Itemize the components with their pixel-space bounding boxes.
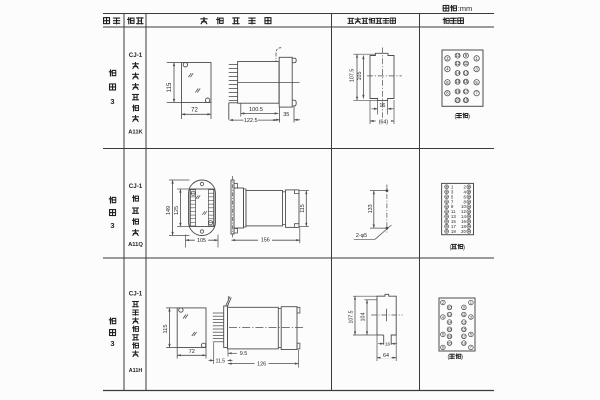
svg-text:CJ-1: CJ-1: [129, 291, 143, 298]
svg-text:): ): [463, 245, 465, 251]
svg-text:104: 104: [361, 313, 367, 322]
svg-text:126: 126: [257, 362, 266, 368]
svg-text:12: 12: [448, 313, 452, 317]
svg-text:19: 19: [464, 98, 469, 103]
svg-text:125: 125: [174, 206, 180, 215]
svg-text:115: 115: [300, 204, 306, 213]
svg-text:100.5: 100.5: [249, 107, 263, 113]
svg-text:13: 13: [464, 71, 469, 76]
svg-text:107.5: 107.5: [349, 69, 355, 83]
svg-text:72: 72: [189, 349, 195, 355]
svg-text:10: 10: [455, 53, 460, 58]
svg-text:105: 105: [357, 72, 363, 81]
svg-text:20: 20: [448, 341, 452, 345]
svg-text:13: 13: [462, 320, 466, 324]
svg-text:133: 133: [368, 204, 374, 213]
svg-text:17: 17: [464, 89, 469, 94]
svg-text:149: 149: [166, 206, 172, 215]
svg-text:18: 18: [455, 89, 460, 94]
svg-text:1: 1: [470, 301, 472, 305]
svg-text:(: (: [450, 245, 452, 251]
svg-text:A11H: A11H: [129, 368, 143, 374]
svg-text:6: 6: [446, 80, 449, 85]
svg-text:20: 20: [455, 98, 460, 103]
svg-text:CJ-1: CJ-1: [129, 52, 143, 59]
svg-text:CJ-1: CJ-1: [129, 183, 143, 190]
svg-text:11: 11: [462, 313, 466, 317]
svg-text:7: 7: [470, 346, 472, 350]
svg-text:A11Q: A11Q: [128, 242, 143, 248]
svg-text:(: (: [455, 114, 457, 120]
svg-text:4: 4: [442, 315, 444, 319]
svg-text:18: 18: [448, 335, 452, 339]
svg-text:(64): (64): [379, 119, 389, 125]
svg-text:3: 3: [110, 339, 114, 348]
svg-text:122.5: 122.5: [244, 118, 258, 124]
svg-text:105: 105: [197, 238, 206, 244]
svg-text:72: 72: [191, 108, 198, 114]
svg-text:14: 14: [448, 320, 452, 324]
svg-text:9: 9: [463, 306, 465, 310]
svg-text:9.5: 9.5: [240, 351, 248, 357]
svg-text:16: 16: [448, 328, 452, 332]
svg-text:7: 7: [475, 91, 478, 96]
svg-text:8: 8: [446, 91, 449, 96]
svg-text:): ): [468, 114, 470, 120]
svg-text:6: 6: [442, 333, 444, 337]
svg-text:): ): [461, 355, 463, 361]
svg-text:17: 17: [462, 335, 466, 339]
svg-text:20: 20: [461, 229, 466, 234]
svg-text:2-φ5: 2-φ5: [356, 233, 367, 239]
svg-text:3: 3: [110, 221, 114, 230]
svg-text:16: 16: [385, 342, 391, 347]
svg-text:5: 5: [475, 80, 478, 85]
svg-text:35: 35: [283, 112, 289, 118]
svg-text:115: 115: [163, 325, 169, 334]
svg-text:5: 5: [470, 333, 472, 337]
svg-text:3: 3: [475, 67, 478, 72]
svg-text:11: 11: [464, 61, 469, 66]
svg-text:10: 10: [448, 306, 452, 310]
svg-text:A11K: A11K: [128, 130, 143, 136]
svg-text:16: 16: [455, 79, 460, 84]
svg-text:12: 12: [455, 61, 460, 66]
svg-text:1: 1: [475, 56, 478, 61]
svg-text:3: 3: [110, 97, 114, 106]
svg-text:15: 15: [462, 328, 466, 332]
svg-text:(: (: [448, 355, 450, 361]
svg-text:3: 3: [470, 315, 472, 319]
svg-text:115: 115: [167, 82, 173, 92]
svg-text:16: 16: [379, 103, 385, 109]
svg-text:11.5: 11.5: [216, 359, 226, 365]
svg-text:15: 15: [464, 79, 469, 84]
svg-text:4: 4: [446, 67, 449, 72]
svg-text::mm: :mm: [458, 4, 473, 13]
svg-text:8: 8: [442, 346, 444, 350]
svg-text:156: 156: [261, 237, 270, 243]
svg-text:2: 2: [442, 301, 444, 305]
svg-text:19: 19: [451, 229, 456, 234]
svg-text:64: 64: [383, 353, 389, 359]
svg-text:2: 2: [446, 56, 449, 61]
svg-text:14: 14: [455, 71, 460, 76]
svg-text:19: 19: [462, 341, 466, 345]
svg-text:107.5: 107.5: [349, 310, 355, 323]
